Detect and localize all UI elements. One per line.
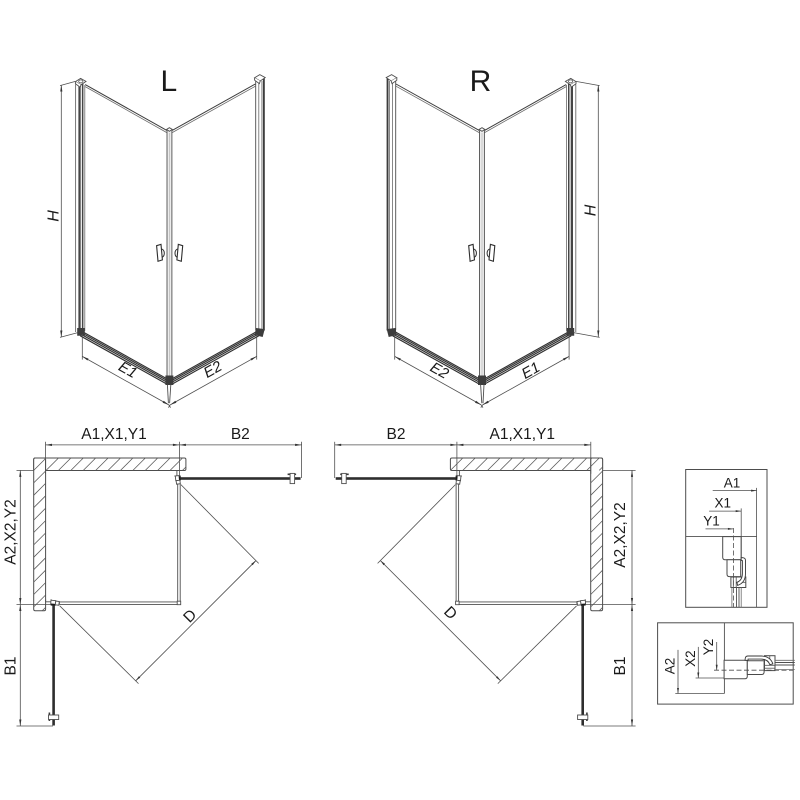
svg-text:B2: B2 [387,426,406,443]
svg-text:B1: B1 [612,657,629,676]
svg-text:A2,X2,Y2: A2,X2,Y2 [612,502,629,568]
svg-text:R: R [470,65,492,98]
svg-text:H: H [46,210,63,222]
svg-text:Y1: Y1 [703,514,720,529]
svg-text:B2: B2 [231,426,250,443]
svg-text:X1: X1 [715,496,732,511]
svg-text:A1,X1,Y1: A1,X1,Y1 [81,426,147,443]
svg-text:A1: A1 [724,475,741,490]
svg-text:X2: X2 [683,650,698,667]
svg-text:A1,X1,Y1: A1,X1,Y1 [490,426,556,443]
svg-text:A2: A2 [663,658,678,675]
svg-text:Y2: Y2 [701,639,716,656]
svg-text:H: H [583,204,600,216]
svg-text:B1: B1 [3,657,20,676]
svg-text:A2,X2,Y2: A2,X2,Y2 [3,499,20,565]
svg-text:L: L [160,65,177,98]
